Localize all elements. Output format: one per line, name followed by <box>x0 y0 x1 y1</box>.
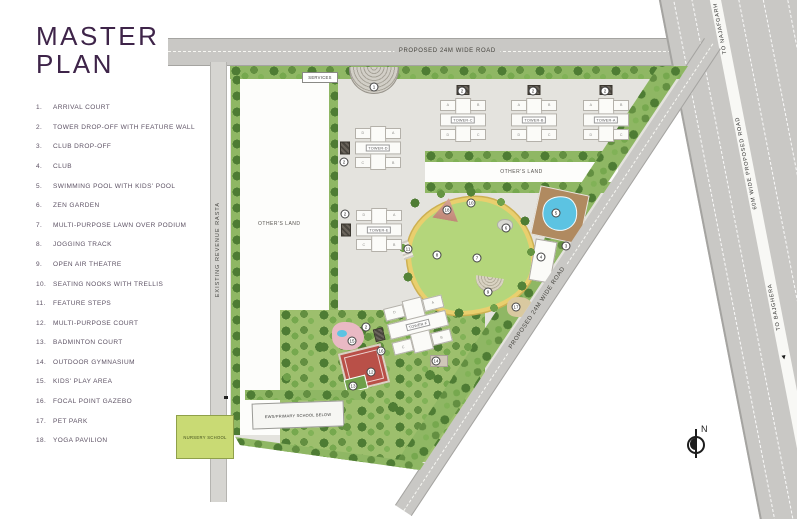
legend-label: KIDS' PLAY AREA <box>53 378 196 385</box>
legend-item: 4. CLUB <box>36 163 196 170</box>
tower-wing: B <box>386 239 402 250</box>
legend-label: ARRIVAL COURT <box>53 104 196 111</box>
legend-item: 11. FEATURE STEPS <box>36 300 196 307</box>
tower-wing: C <box>392 338 415 356</box>
tower-dropoff-pad <box>528 85 541 95</box>
legend-label: SEATING NOOKS WITH TRELLIS <box>53 281 196 288</box>
legend-num: 3. <box>36 143 53 150</box>
tower-wing-label: B <box>477 103 479 107</box>
north-compass: N <box>682 424 718 462</box>
tower-wing: A <box>421 294 444 312</box>
tower-building: A B D C TOWER-B <box>511 98 557 142</box>
tower-wing: A <box>583 100 599 111</box>
legend-num: 2. <box>36 124 53 131</box>
legend-num: 6. <box>36 202 53 209</box>
legend-item: 1. ARRIVAL COURT <box>36 104 196 111</box>
legend-num: 7. <box>36 222 53 229</box>
legend-label: FEATURE STEPS <box>53 300 196 307</box>
legend-item: 8. JOGGING TRACK <box>36 241 196 248</box>
tower-wing-label: B <box>392 161 394 165</box>
legend-label: JOGGING TRACK <box>53 241 196 248</box>
legend-label: TOWER DROP-OFF WITH FEATURE WALL <box>53 124 196 131</box>
legend-num: 15. <box>36 378 53 385</box>
tower-wing: B <box>613 100 629 111</box>
tower-building: A B D C TOWER-C <box>440 98 486 142</box>
tower-dropoff-pad <box>341 224 351 237</box>
legend-item: 14. OUTDOOR GYMNASIUM <box>36 359 196 366</box>
tower-dropoff-pad <box>457 85 470 95</box>
south-arrow-icon: ▼ <box>780 354 788 362</box>
tower-wing: D <box>356 210 372 221</box>
legend-num: 12. <box>36 320 53 327</box>
legend-label: YOGA PAVILION <box>53 437 196 444</box>
tower-name: TOWER-E <box>367 227 391 234</box>
legend-num: 4. <box>36 163 53 170</box>
road-proposed-24m-top: PROPOSED 24M WIDE ROAD <box>168 38 701 66</box>
legend-label: MULTI-PURPOSE LAWN OVER PODIUM <box>53 222 196 229</box>
tower-wing-label: A <box>590 103 592 107</box>
school-gate-marker <box>224 396 228 399</box>
tower-wing-label: D <box>393 310 396 315</box>
legend-item: 2. TOWER DROP-OFF WITH FEATURE WALL <box>36 124 196 131</box>
legend-item: 7. MULTI-PURPOSE LAWN OVER PODIUM <box>36 222 196 229</box>
compass-north-label: N <box>701 424 708 434</box>
tower-wing-label: C <box>620 133 623 137</box>
tower-wing: C <box>355 157 371 168</box>
tower-wing: A <box>440 100 456 111</box>
tower-wing-label: B <box>620 103 622 107</box>
tower-wing: A <box>386 210 402 221</box>
road-label-revenue-rasta: EXISTING REVENUE RASTA <box>215 202 221 297</box>
tower-wing: D <box>511 129 527 140</box>
tower-wing: B <box>430 329 453 347</box>
legend-label: ZEN GARDEN <box>53 202 196 209</box>
legend-item: 6. ZEN GARDEN <box>36 202 196 209</box>
legend-item: 10. SEATING NOOKS WITH TRELLIS <box>36 281 196 288</box>
tower-building: A B D C TOWER-A <box>583 98 629 142</box>
tower-wing-label: C <box>477 133 480 137</box>
legend-panel: MASTERPLAN 1. ARRIVAL COURT 2. TOWER DRO… <box>36 22 196 457</box>
legend-num: 1. <box>36 104 53 111</box>
tower-name: TOWER-C <box>451 117 475 124</box>
tower-wing: C <box>356 239 372 250</box>
legend-item: 16. FOCAL POINT GAZEBO <box>36 398 196 405</box>
legend-label: MULTI-PURPOSE COURT <box>53 320 196 327</box>
page-title: MASTERPLAN <box>36 22 196 78</box>
tower-wing: C <box>613 129 629 140</box>
legend-num: 8. <box>36 241 53 248</box>
tower-wing-label: A <box>447 103 449 107</box>
road-label-top: PROPOSED 24M WIDE ROAD <box>394 48 501 54</box>
tower-wing-label: D <box>363 213 366 217</box>
tower-building: D A C B TOWER-D <box>355 126 401 170</box>
tower-wing: D <box>383 304 406 322</box>
tower-building: D A C B TOWER-E <box>356 208 402 252</box>
tower-dropoff-pad <box>340 142 350 155</box>
tower-wing-label: A <box>392 131 394 135</box>
tower-wing: A <box>511 100 527 111</box>
legend-item: 15. KIDS' PLAY AREA <box>36 378 196 385</box>
tower-dropoff-pad <box>373 327 386 342</box>
legend-label: CLUB DROP-OFF <box>53 143 196 150</box>
legend-item: 3. CLUB DROP-OFF <box>36 143 196 150</box>
highway-median: ▲ TO NAJAFGARH 60M WIDE PROPOSED ROAD TO… <box>704 0 797 519</box>
tower-wing: C <box>470 129 486 140</box>
tower-wing-label: C <box>401 345 404 350</box>
tower-name: TOWER-B <box>522 117 546 124</box>
legend-label: BADMINTON COURT <box>53 339 196 346</box>
tower-wing-label: D <box>590 133 593 137</box>
tower-wing-label: B <box>393 243 395 247</box>
tower-name: TOWER-A <box>594 117 618 124</box>
tower-wing-label: A <box>518 103 520 107</box>
tower-wing-label: A <box>431 301 434 305</box>
tower-wing-label: B <box>440 335 443 339</box>
legend-num: 13. <box>36 339 53 346</box>
legend-list: 1. ARRIVAL COURT 2. TOWER DROP-OFF WITH … <box>36 104 196 444</box>
destination-bajghera-label: TO BAJGHERA <box>767 283 782 331</box>
tower-name: TOWER-D <box>366 145 390 152</box>
tower-wing: B <box>541 100 557 111</box>
tower-wing-label: B <box>548 103 550 107</box>
tower-wing-label: D <box>362 131 365 135</box>
highway-label: 60M WIDE PROPOSED ROAD <box>735 116 759 210</box>
legend-num: 11. <box>36 300 53 307</box>
legend-label: SWIMMING POOL WITH KIDS' POOL <box>53 183 196 190</box>
tower-wing: C <box>541 129 557 140</box>
legend-item: 5. SWIMMING POOL WITH KIDS' POOL <box>36 183 196 190</box>
tower-wing-label: C <box>363 243 366 247</box>
legend-item: 17. PET PARK <box>36 418 196 425</box>
tower-wing-label: A <box>393 213 395 217</box>
legend-num: 9. <box>36 261 53 268</box>
tower-wing-label: C <box>548 133 551 137</box>
master-plan-page: MASTERPLAN 1. ARRIVAL COURT 2. TOWER DRO… <box>0 0 797 519</box>
legend-label: OPEN AIR THEATRE <box>53 261 196 268</box>
tower-wing: D <box>583 129 599 140</box>
legend-num: 5. <box>36 183 53 190</box>
legend-num: 17. <box>36 418 53 425</box>
legend-num: 18. <box>36 437 53 444</box>
legend-label: PET PARK <box>53 418 196 425</box>
tower-wing-label: D <box>518 133 521 137</box>
legend-num: 10. <box>36 281 53 288</box>
tower-wing: B <box>385 157 401 168</box>
legend-label: OUTDOOR GYMNASIUM <box>53 359 196 366</box>
tower-wing: D <box>440 129 456 140</box>
compass-needle-icon <box>695 429 697 458</box>
legend-item: 12. MULTI-PURPOSE COURT <box>36 320 196 327</box>
tower-wing: A <box>385 128 401 139</box>
legend-label: CLUB <box>53 163 196 170</box>
legend-item: 18. YOGA PAVILION <box>36 437 196 444</box>
tower-dropoff-pad <box>600 85 613 95</box>
legend-label: FOCAL POINT GAZEBO <box>53 398 196 405</box>
legend-item: 9. OPEN AIR THEATRE <box>36 261 196 268</box>
tower-wing: D <box>355 128 371 139</box>
tower-wing-label: D <box>447 133 450 137</box>
tower-wing: B <box>470 100 486 111</box>
tower-wing-label: C <box>362 161 365 165</box>
tower-building: D A C B TOWER-F <box>382 292 453 359</box>
legend-num: 14. <box>36 359 53 366</box>
legend-num: 16. <box>36 398 53 405</box>
legend-item: 13. BADMINTON COURT <box>36 339 196 346</box>
